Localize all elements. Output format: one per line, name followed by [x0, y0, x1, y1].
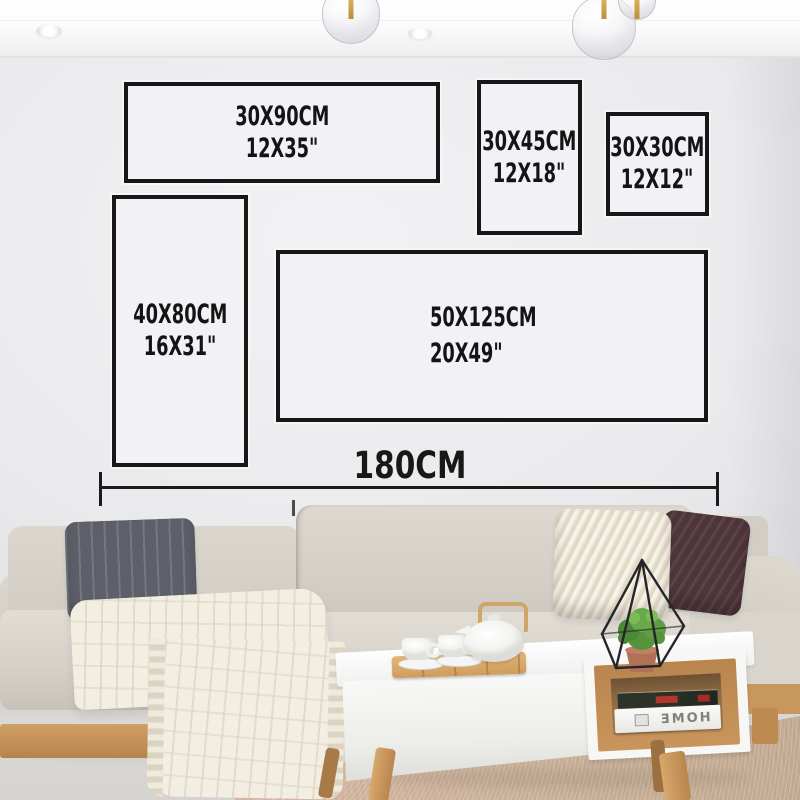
pendant-stem [635, 0, 640, 19]
book-logo [635, 714, 650, 727]
sofa-wood-leg-right [752, 708, 778, 744]
book-home: HOME [614, 705, 721, 734]
size-cm-text: 40X80CM [133, 300, 227, 330]
size-cm-text: 30X45CM [482, 127, 576, 157]
dimension-tick-right [716, 472, 719, 506]
pendant-stem [349, 0, 354, 19]
size-frame-label: 30X45CM 12X18" [481, 84, 578, 231]
size-frame-50x125: 50X125CM 20X49" [276, 250, 708, 422]
size-cm-text: 30X30CM [610, 133, 704, 163]
size-cm-text: 30X90CM [235, 102, 329, 132]
teapot-lid [488, 614, 500, 621]
size-cm-text: 50X125CM [430, 303, 537, 333]
ceiling [0, 0, 800, 58]
size-inch-text: 12X18" [493, 159, 566, 189]
dimension-tick-left [99, 472, 102, 506]
ceiling-soffit-edge [0, 20, 800, 21]
size-frame-label: 30X90CM 12X35" [128, 86, 436, 179]
total-width-label: 180CM [330, 447, 490, 485]
size-frame-30x30: 30X30CM 12X12" [606, 112, 709, 216]
size-frame-label: 40X80CM 16X31" [116, 199, 244, 463]
tea-cup [402, 638, 434, 660]
book-spine-text: HOME [648, 709, 721, 727]
size-inch-text: 16X31" [144, 332, 217, 362]
size-frame-label: 50X125CM 20X49" [430, 254, 591, 418]
book-red-label [698, 694, 710, 701]
size-frame-30x90: 30X90CM 12X35" [124, 82, 440, 183]
pendant-stem [602, 0, 607, 19]
size-frame-label: 30X30CM 12X12" [610, 116, 705, 212]
size-inch-text: 20X49" [430, 339, 503, 369]
shelf-opening: HOME [611, 673, 724, 735]
teapot [464, 620, 524, 662]
size-inch-text: 12X35" [246, 134, 319, 164]
size-frame-30x45: 30X45CM 12X18" [477, 80, 582, 235]
sofa-cushion-seam [292, 500, 295, 516]
throw-blanket-drape [147, 638, 346, 799]
size-inch-text: 12X12" [621, 165, 694, 195]
book-red-label [656, 696, 678, 704]
size-frame-40x80: 40X80CM 16X31" [112, 195, 248, 467]
wire-terrarium-with-plant [596, 556, 696, 678]
living-room-size-guide: 30X90CM 12X35" 30X45CM 12X18" 30X30CM 12… [0, 0, 800, 800]
recessed-light [36, 25, 62, 37]
recessed-light [408, 28, 432, 39]
